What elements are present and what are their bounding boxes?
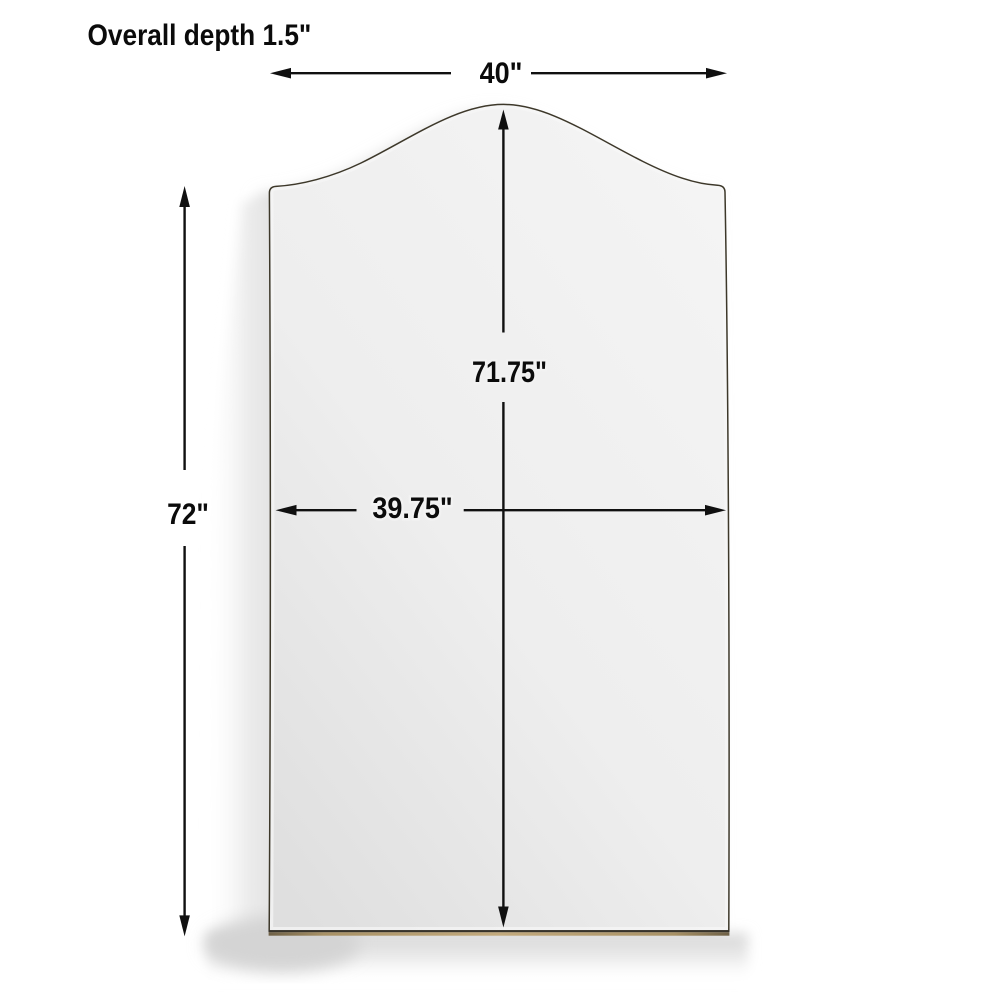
svg-text:71.75": 71.75": [472, 355, 547, 389]
svg-text:39.75": 39.75": [372, 492, 452, 526]
svg-text:40": 40": [480, 57, 523, 91]
svg-text:72": 72": [167, 496, 209, 530]
svg-text:Overall depth 1.5": Overall depth 1.5": [88, 17, 312, 51]
